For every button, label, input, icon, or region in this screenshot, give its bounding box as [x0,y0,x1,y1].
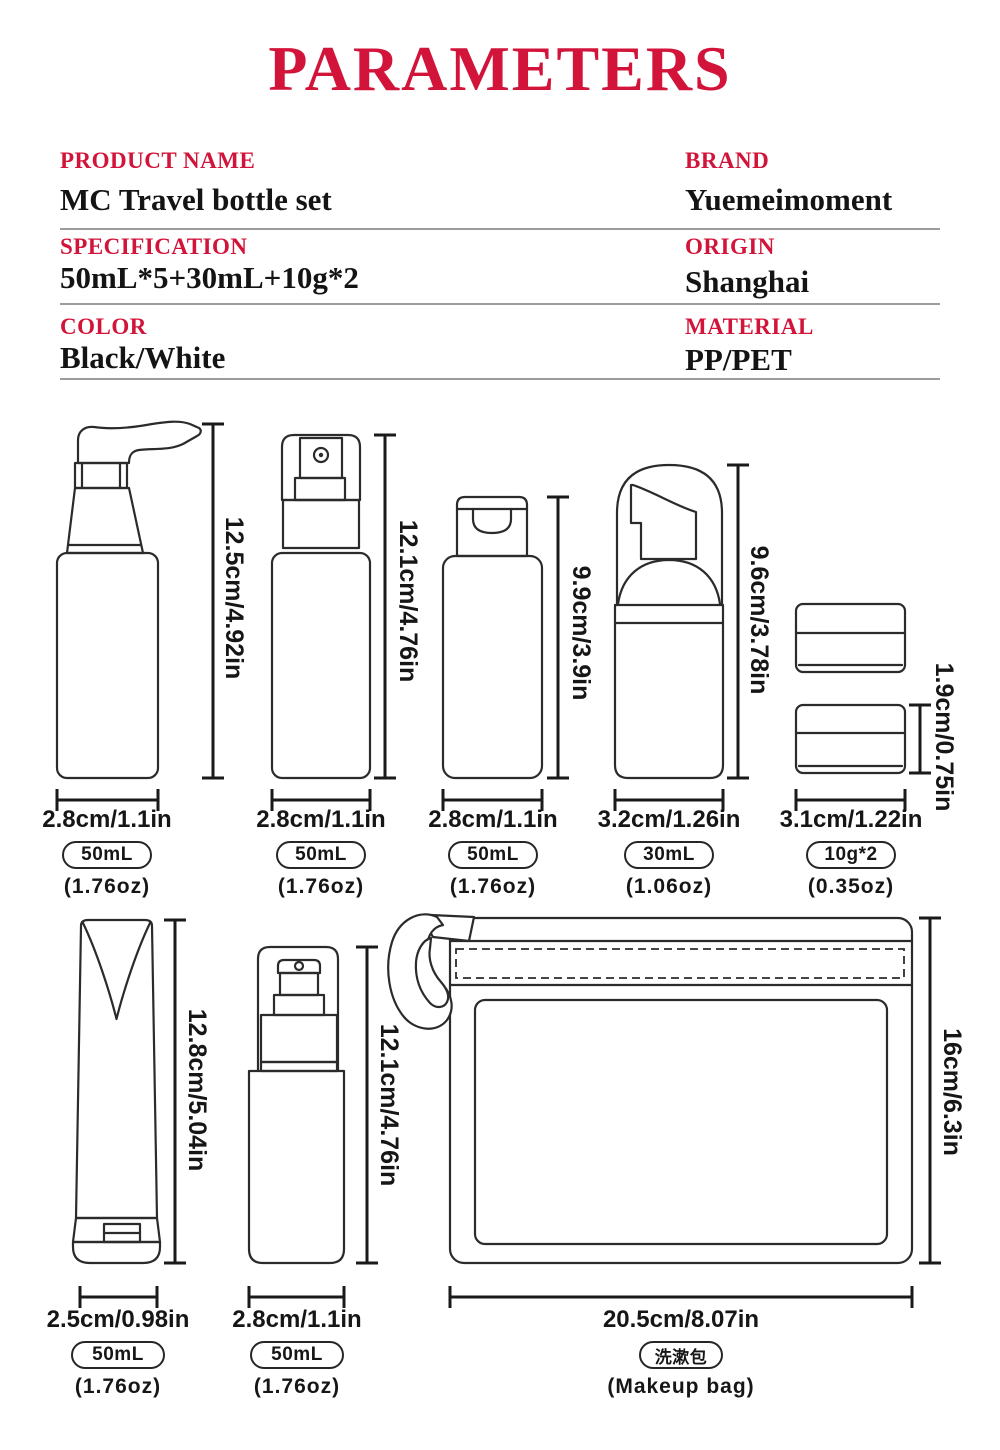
height-dimension-line [547,497,569,778]
spray-bottle-drawing [272,435,396,811]
width-label-makeup-bag: 20.5cm/8.07in [596,1306,766,1334]
capacity-badge-pump-bottle: 50mL [62,841,152,869]
spec-value-origin: Shanghai [685,262,809,302]
height-label-fliptop-bottle: 9.9cm/3.9in [567,533,595,733]
height-label-foam-pump-bottle: 9.6cm/3.78in [745,520,773,720]
height-label-squeeze-tube: 12.8cm/5.04in [183,990,211,1190]
spec-value-product-name: MC Travel bottle set [60,180,332,220]
capacity-oz-makeup-bag: (Makeup bag) [581,1374,781,1400]
spec-label-color: COLOR [60,314,147,340]
width-label-spray-bottle: 2.8cm/1.1in [236,806,406,834]
width-dimension-line [249,1286,344,1308]
width-label-pump-bottle: 2.8cm/1.1in [22,806,192,834]
capacity-oz-foam-pump-bottle: (1.06oz) [584,874,754,900]
cream-jars-drawing [796,604,931,811]
height-dimension-line [909,705,931,773]
capacity-oz-fliptop-bottle: (1.76oz) [408,874,578,900]
spec-label-material: MATERIAL [685,314,814,340]
capacity-badge-spray-bottle: 50mL [276,841,366,869]
product-drawings [0,400,1000,1450]
capacity-oz-spray-bottle: (1.76oz) [236,874,406,900]
spec-label-brand: BRAND [685,148,769,174]
capacity-oz-squeeze-tube: (1.76oz) [33,1374,203,1400]
height-dimension-line [374,435,396,778]
spec-value-specification: 50mL*5+30mL+10g*2 [60,258,359,298]
fliptop-bottle-drawing [443,497,569,811]
capacity-badge-fliptop-bottle: 50mL [448,841,538,869]
spec-label-specification: SPECIFICATION [60,234,248,260]
width-dimension-line [80,1286,157,1308]
lotion-pump-bottle-drawing [249,947,378,1308]
capacity-badge-foam-pump-bottle: 30mL [624,841,714,869]
capacity-badge-cream-jars: 10g*2 [806,841,896,869]
capacity-badge-makeup-bag: 洗漱包 [639,1341,723,1369]
makeup-bag-drawing [388,914,941,1308]
foam-pump-bottle-drawing [615,465,749,811]
width-dimension-line [450,1286,912,1308]
capacity-badge-squeeze-tube: 50mL [71,1341,165,1369]
pump-bottle-drawing [57,422,224,811]
capacity-oz-cream-jars: (0.35oz) [766,874,936,900]
height-label-spray-bottle: 12.1cm/4.76in [394,501,422,701]
capacity-oz-pump-bottle: (1.76oz) [22,874,192,900]
divider-row1 [60,228,940,230]
page-title: PARAMETERS [0,32,1000,106]
width-label-foam-pump-bottle: 3.2cm/1.26in [584,806,754,834]
divider-row3 [60,378,940,380]
width-label-lotion-pump-bottle: 2.8cm/1.1in [212,1306,382,1334]
divider-row2 [60,303,940,305]
capacity-oz-lotion-pump-bottle: (1.76oz) [212,1374,382,1400]
width-label-cream-jars: 3.1cm/1.22in [766,806,936,834]
squeeze-tube-drawing [73,920,186,1308]
spec-value-brand: Yuemeimoment [685,180,892,220]
width-label-fliptop-bottle: 2.8cm/1.1in [408,806,578,834]
height-label-makeup-bag: 16cm/6.3in [938,992,966,1192]
height-label-pump-bottle: 12.5cm/4.92in [220,498,248,698]
product-parameters-sheet: PARAMETERS PRODUCT NAME MC Travel bottle… [0,0,1000,1450]
capacity-badge-lotion-pump-bottle: 50mL [250,1341,344,1369]
width-label-squeeze-tube: 2.5cm/0.98in [33,1306,203,1334]
spec-label-product-name: PRODUCT NAME [60,148,255,174]
spec-label-origin: ORIGIN [685,234,775,260]
height-label-lotion-pump-bottle: 12.1cm/4.76in [375,1005,403,1205]
spec-value-material: PP/PET [685,340,792,380]
spec-value-color: Black/White [60,338,225,378]
